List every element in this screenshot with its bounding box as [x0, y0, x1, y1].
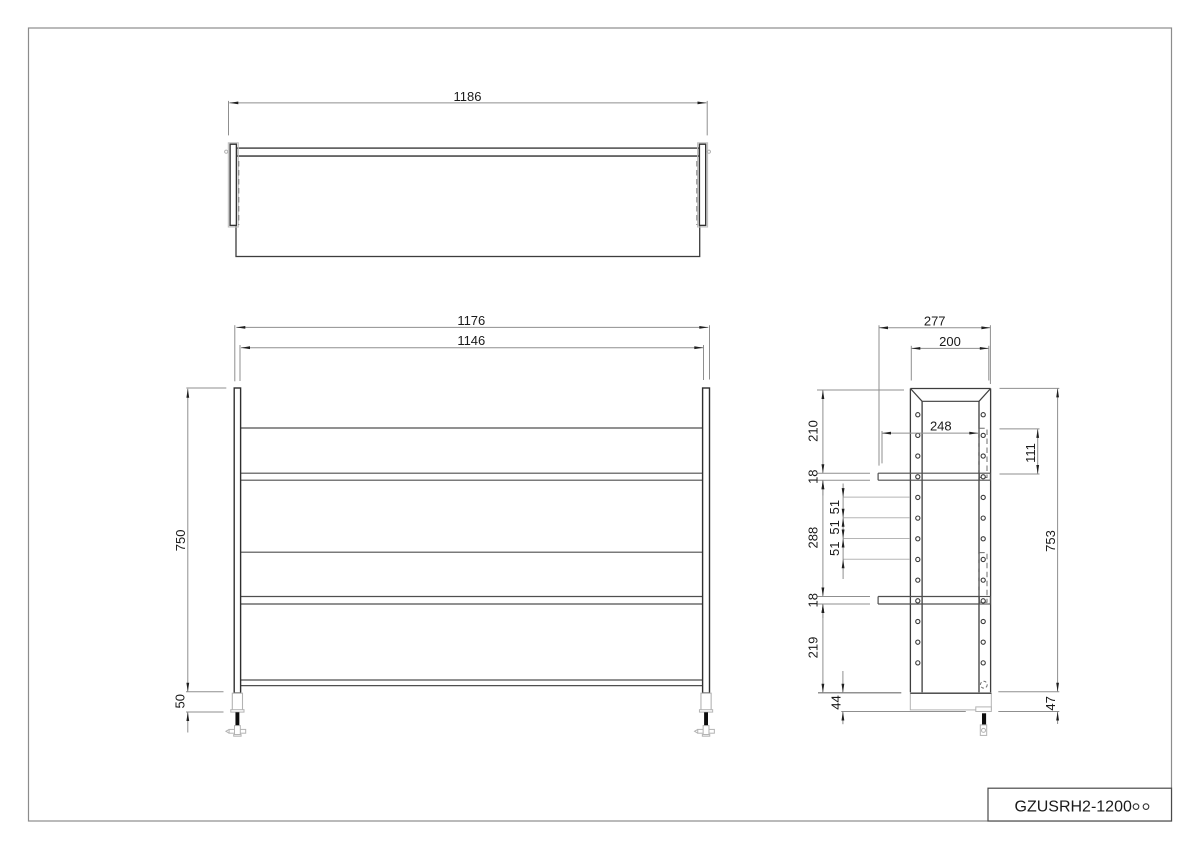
svg-text:200: 200: [939, 334, 961, 349]
svg-text:51: 51: [827, 500, 842, 514]
svg-text:1186: 1186: [454, 89, 482, 104]
svg-text:50: 50: [172, 694, 187, 708]
svg-text:288: 288: [806, 527, 821, 549]
svg-text:219: 219: [806, 637, 821, 659]
svg-text:111: 111: [1023, 443, 1038, 463]
svg-text:277: 277: [924, 313, 946, 328]
svg-text:248: 248: [930, 419, 952, 434]
svg-text:18: 18: [806, 593, 821, 607]
svg-text:753: 753: [1043, 530, 1058, 552]
svg-text:47: 47: [1043, 696, 1058, 710]
svg-text:18: 18: [806, 469, 821, 483]
svg-text:GZUSRH2-1200: GZUSRH2-1200: [1015, 799, 1132, 816]
svg-text:1176: 1176: [457, 313, 485, 328]
svg-text:210: 210: [806, 420, 821, 442]
svg-text:51: 51: [827, 520, 842, 534]
svg-text:44: 44: [829, 695, 844, 709]
svg-text:750: 750: [173, 530, 188, 552]
svg-text:51: 51: [827, 542, 842, 556]
svg-text:1146: 1146: [457, 333, 485, 348]
